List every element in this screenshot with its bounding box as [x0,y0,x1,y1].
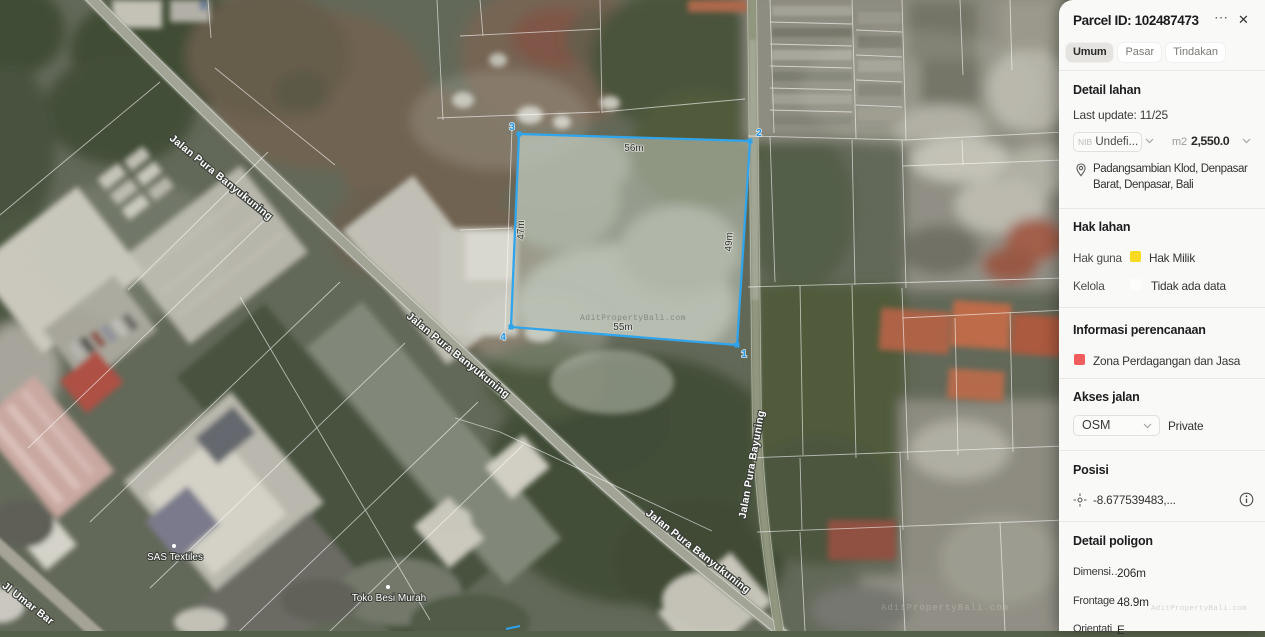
svg-text:49m: 49m [724,232,736,252]
svg-text:55m: 55m [613,322,632,333]
svg-text:AditPropertyBali.com: AditPropertyBali.com [580,314,686,323]
svg-text:56m: 56m [624,143,643,154]
svg-text:SAS Textiles: SAS Textiles [147,552,203,563]
svg-text:2: 2 [756,128,762,139]
svg-text:1: 1 [741,349,747,360]
svg-text:4: 4 [500,332,506,343]
svg-text:Toko Besi Murah: Toko Besi Murah [352,593,426,604]
svg-text:47m: 47m [516,220,527,239]
svg-text:AditPropertyBali.com: AditPropertyBali.com [881,603,1009,613]
svg-text:3: 3 [509,122,515,133]
